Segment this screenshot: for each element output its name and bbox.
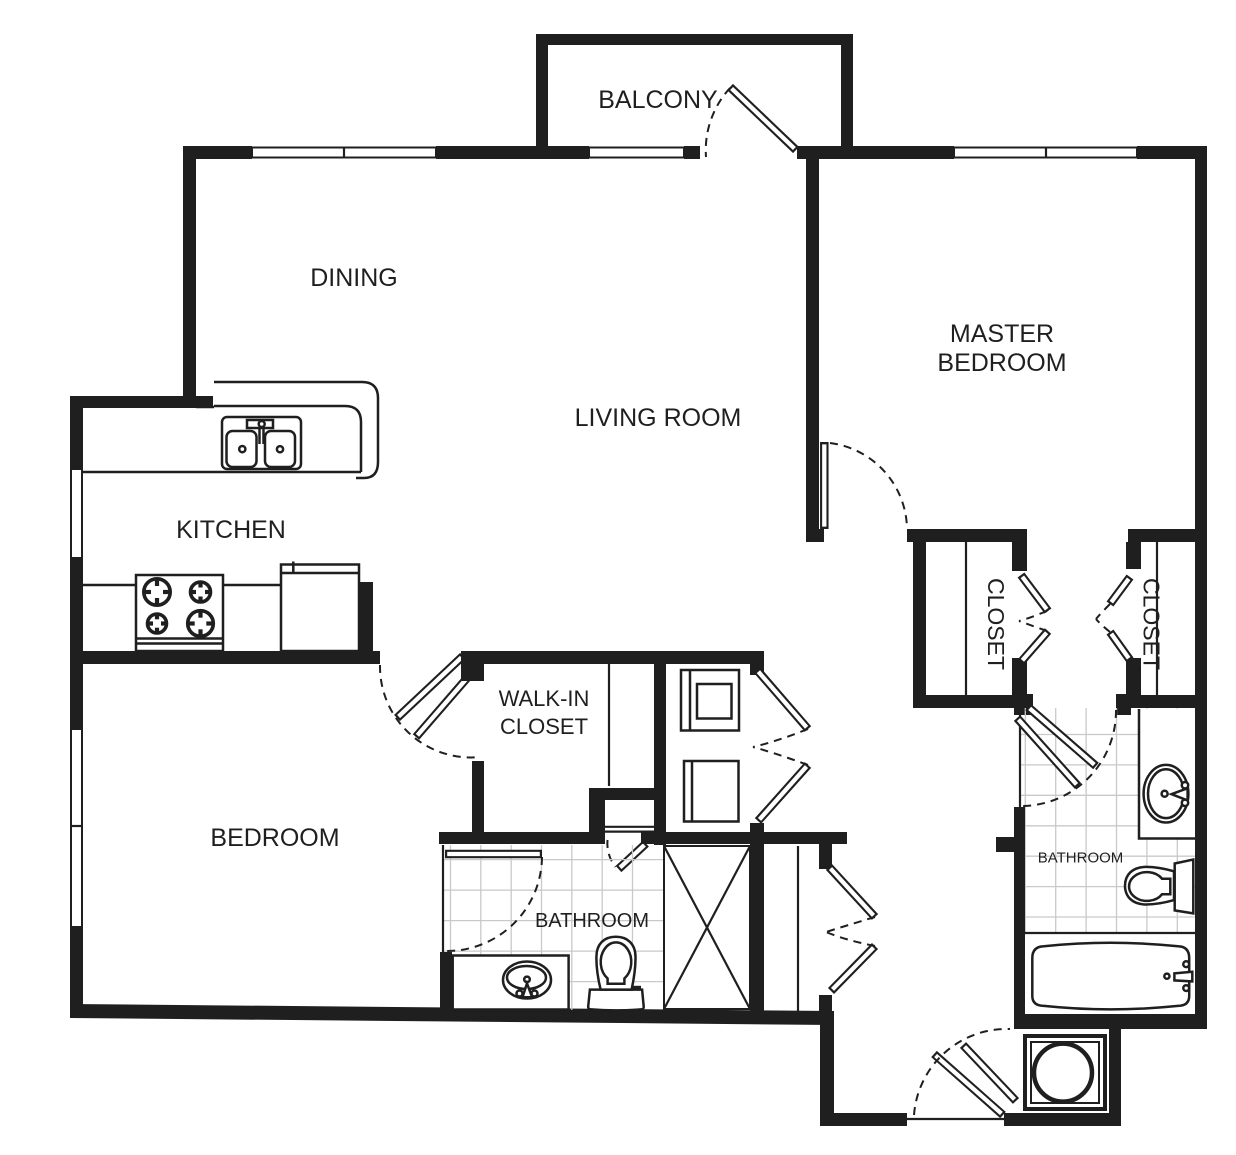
svg-text:MASTER: MASTER xyxy=(950,320,1054,348)
svg-text:WALK-IN: WALK-IN xyxy=(499,686,590,711)
svg-text:KITCHEN: KITCHEN xyxy=(176,516,286,544)
svg-text:BATHROOM: BATHROOM xyxy=(1038,850,1124,867)
svg-text:BEDROOM: BEDROOM xyxy=(937,349,1066,377)
svg-text:CLOSET: CLOSET xyxy=(1139,578,1165,670)
svg-text:CLOSET: CLOSET xyxy=(983,578,1009,670)
svg-text:LIVING ROOM: LIVING ROOM xyxy=(575,404,742,432)
svg-text:CLOSET: CLOSET xyxy=(500,714,588,739)
svg-text:BATHROOM: BATHROOM xyxy=(535,910,649,932)
svg-text:DINING: DINING xyxy=(310,264,398,292)
svg-text:BALCONY: BALCONY xyxy=(598,86,718,114)
svg-text:BEDROOM: BEDROOM xyxy=(210,824,339,852)
